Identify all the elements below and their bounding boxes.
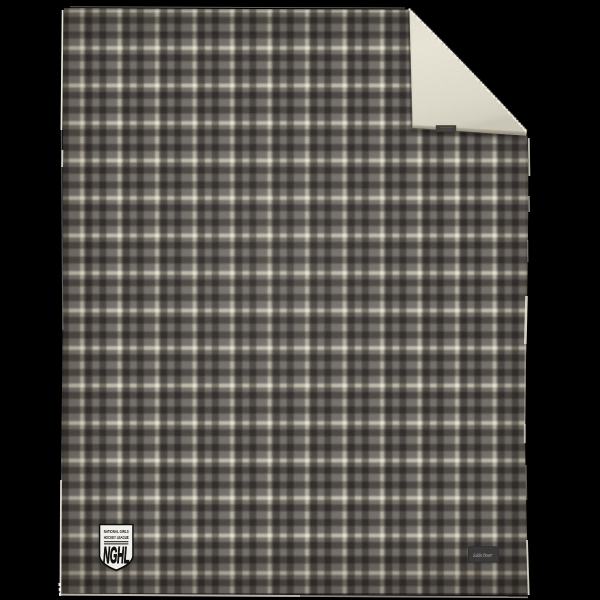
- svg-text:NGHL: NGHL: [103, 542, 130, 568]
- svg-text:Eddie Bauer: Eddie Bauer: [472, 552, 493, 559]
- svg-text:HOCKEY LEAGUE: HOCKEY LEAGUE: [104, 535, 129, 540]
- svg-text:NATIONAL GIRLS: NATIONAL GIRLS: [104, 529, 129, 534]
